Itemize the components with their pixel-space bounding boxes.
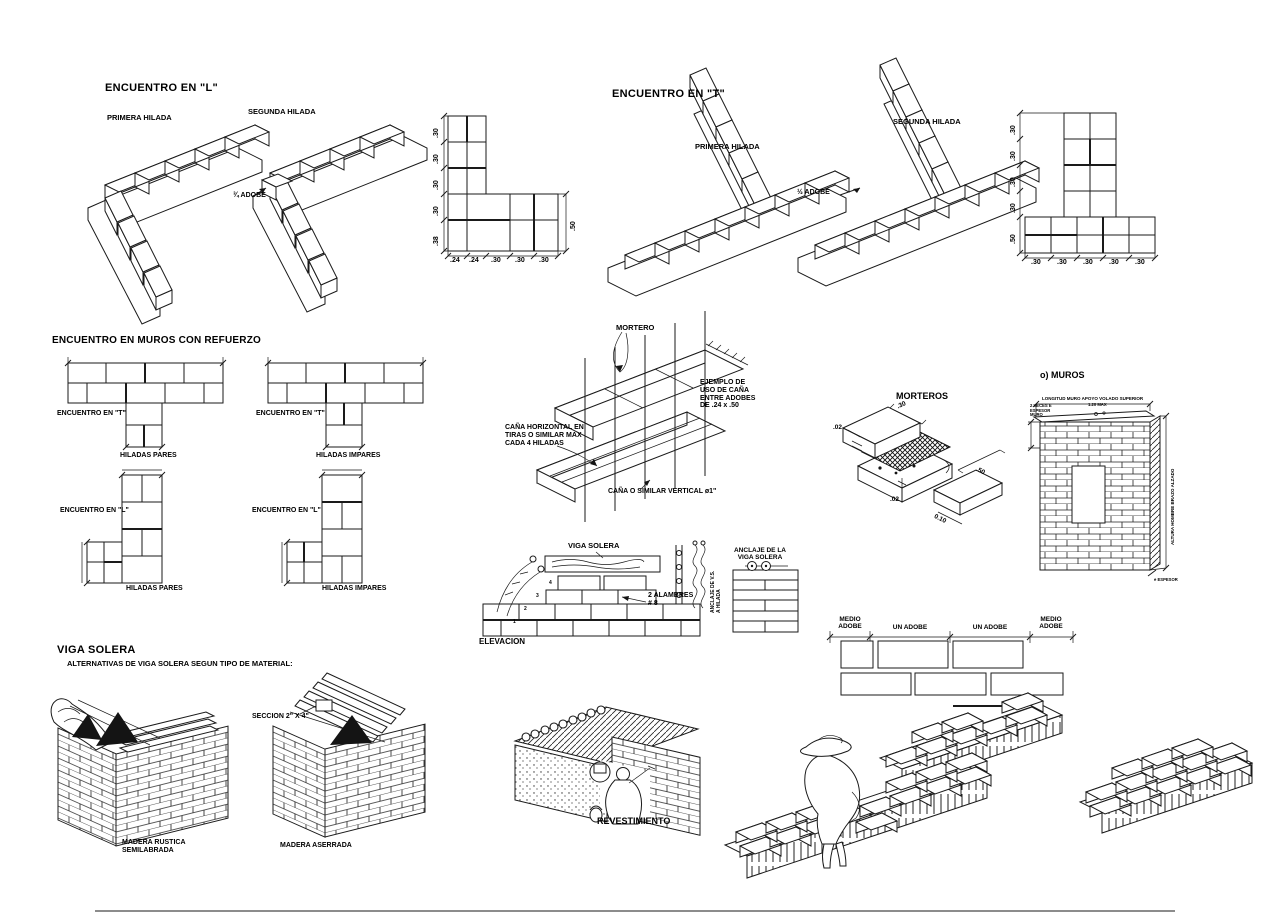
dim-label: .30 bbox=[515, 257, 525, 265]
primera-hilada-label: PRIMERA HILADA bbox=[695, 143, 760, 151]
dim-label: .02 bbox=[890, 496, 899, 503]
segunda-hilada-label: SEGUNDA HILADA bbox=[893, 118, 961, 126]
muros-refuerzo-plans bbox=[65, 357, 426, 586]
madera-aserrada-label: MADERA ASERRADA bbox=[280, 842, 352, 850]
dim-label: .30 bbox=[433, 206, 441, 216]
muros-title: o) MUROS bbox=[1040, 370, 1085, 380]
aparejo-un-1: UN ADOBE bbox=[877, 624, 943, 631]
aparejo-strip-drawing bbox=[827, 631, 1076, 706]
dim-label: .30 bbox=[433, 154, 441, 164]
t-pares-sub: HILADAS PARES bbox=[120, 452, 177, 460]
encuentro-l-primera-drawing bbox=[88, 125, 269, 324]
encuentro-t-title: ENCUENTRO EN "T" bbox=[612, 88, 725, 100]
l-pares-label: ENCUENTRO EN "L" bbox=[60, 507, 129, 515]
encuentro-l-title: ENCUENTRO EN "L" bbox=[105, 82, 218, 94]
alambres-note: 2 ALAMBRES # 8 bbox=[648, 592, 693, 608]
viga-solera-elevation-drawing bbox=[483, 541, 705, 636]
dim-label: .30 bbox=[433, 128, 441, 138]
t-impares-label: ENCUENTRO EN "T" bbox=[256, 410, 325, 418]
dim-label: .30 bbox=[1010, 151, 1018, 161]
mortero-label: MORTERO bbox=[616, 324, 654, 332]
l-impares-sub: HILADAS IMPARES bbox=[322, 585, 386, 593]
revestimiento-title: REVESTIMIENTO bbox=[597, 816, 670, 826]
muros-elevation-drawing bbox=[1028, 401, 1169, 576]
dim-label: .38 bbox=[433, 236, 441, 246]
t-impares-sub: HILADAS IMPARES bbox=[316, 452, 380, 460]
encuentro-l-plan-grid bbox=[441, 113, 569, 259]
cana-horizontal-note: CAÑA HORIZONTAL EN TIRAS O SIMILAR MAX C… bbox=[505, 424, 584, 447]
dim-label: .50 bbox=[1010, 234, 1018, 244]
step-number: 3 bbox=[536, 594, 539, 600]
l-impares-label: ENCUENTRO EN "L" bbox=[252, 507, 321, 515]
viga-solera-subtitle: ALTERNATIVAS DE VIGA SOLERA SEGUN TIPO D… bbox=[67, 660, 293, 668]
step-number: 4 bbox=[549, 581, 552, 587]
step-number: 2 bbox=[524, 607, 527, 613]
muros-left-note: 2 VECES E ESPESOR MURO bbox=[1030, 404, 1052, 418]
dim-label: .30 bbox=[1010, 203, 1018, 213]
encuentro-t-plan-grid bbox=[1017, 110, 1158, 261]
ejemplo-cana-note: EJEMPLO DE USO DE CAÑA ENTRE ADOBES DE .… bbox=[700, 379, 755, 410]
encuentro-l-segunda-drawing bbox=[252, 125, 427, 312]
dim-label: .24 bbox=[450, 257, 460, 265]
dim-label: .02 bbox=[833, 424, 842, 431]
adobe-fraction-note: ¾ ADOBE bbox=[233, 192, 266, 200]
adobe-laying-drawing bbox=[725, 693, 1252, 878]
anclaje-title: ANCLAJE DE LA VIGA SOLERA bbox=[727, 547, 793, 562]
seccion-note: SECCION 2" X 4" bbox=[252, 713, 309, 721]
anclaje-detail-drawing bbox=[733, 562, 798, 633]
dim-label: .30 bbox=[433, 180, 441, 190]
dim-label: .30 bbox=[1010, 177, 1018, 187]
adobe-fraction-note: ½ ADOBE bbox=[797, 189, 830, 197]
primera-hilada-label: PRIMERA HILADA bbox=[107, 114, 172, 122]
madera-rustica-label: MADERA RUSTICA SEMILABRADA bbox=[122, 839, 186, 855]
muros-thickness-note: e ESPESOR bbox=[1154, 578, 1178, 583]
cad-sheet: ENCUENTRO EN "L" PRIMERA HILADA SEGUNDA … bbox=[0, 0, 1271, 921]
viga-solera-alternativas-drawing bbox=[51, 673, 425, 846]
dim-label: .30 bbox=[1109, 259, 1119, 267]
muros-refuerzo-title: ENCUENTRO EN MUROS CON REFUERZO bbox=[52, 335, 261, 346]
dim-label: .50 bbox=[570, 221, 578, 231]
cana-vertical-note: CAÑA O SIMILAR VERTICAL ø1" bbox=[608, 488, 716, 496]
segunda-hilada-label: SEGUNDA HILADA bbox=[248, 108, 316, 116]
viga-solera-title: VIGA SOLERA bbox=[57, 644, 136, 656]
viga-solera-label: VIGA SOLERA bbox=[568, 542, 619, 550]
aparejo-medio-2: MEDIO ADOBE bbox=[1032, 616, 1070, 631]
t-pares-label: ENCUENTRO EN "T" bbox=[57, 410, 126, 418]
dim-label: .30 bbox=[1010, 125, 1018, 135]
dim-label: .30 bbox=[1057, 259, 1067, 267]
dim-label: .30 bbox=[1031, 259, 1041, 267]
dim-label: .24 bbox=[469, 257, 479, 265]
muros-top-note: LONGITUD MURO APOYO VOLADO SUPERIOR bbox=[1042, 396, 1143, 401]
elevacion-label: ELEVACION bbox=[479, 638, 525, 647]
morteros-drawing bbox=[843, 404, 1005, 524]
muros-height-note: ALTURA HOMBRE BRAZO ALZADO bbox=[1170, 469, 1175, 545]
muros-mid-note: 1.20 MAX bbox=[1088, 403, 1107, 408]
dim-label: .30 bbox=[491, 257, 501, 265]
step-number: 1 bbox=[513, 620, 516, 626]
aparejo-medio-1: MEDIO ADOBE bbox=[832, 616, 868, 631]
dim-label: .30 bbox=[1135, 259, 1145, 267]
l-pares-sub: HILADAS PARES bbox=[126, 585, 183, 593]
dim-label: .30 bbox=[1083, 259, 1093, 267]
anclaje-side-note: ANCLAJE DE V.S. A HILADA bbox=[711, 571, 722, 613]
drawing-linework bbox=[0, 0, 1271, 921]
dim-label: .30 bbox=[539, 257, 549, 265]
aparejo-un-2: UN ADOBE bbox=[957, 624, 1023, 631]
